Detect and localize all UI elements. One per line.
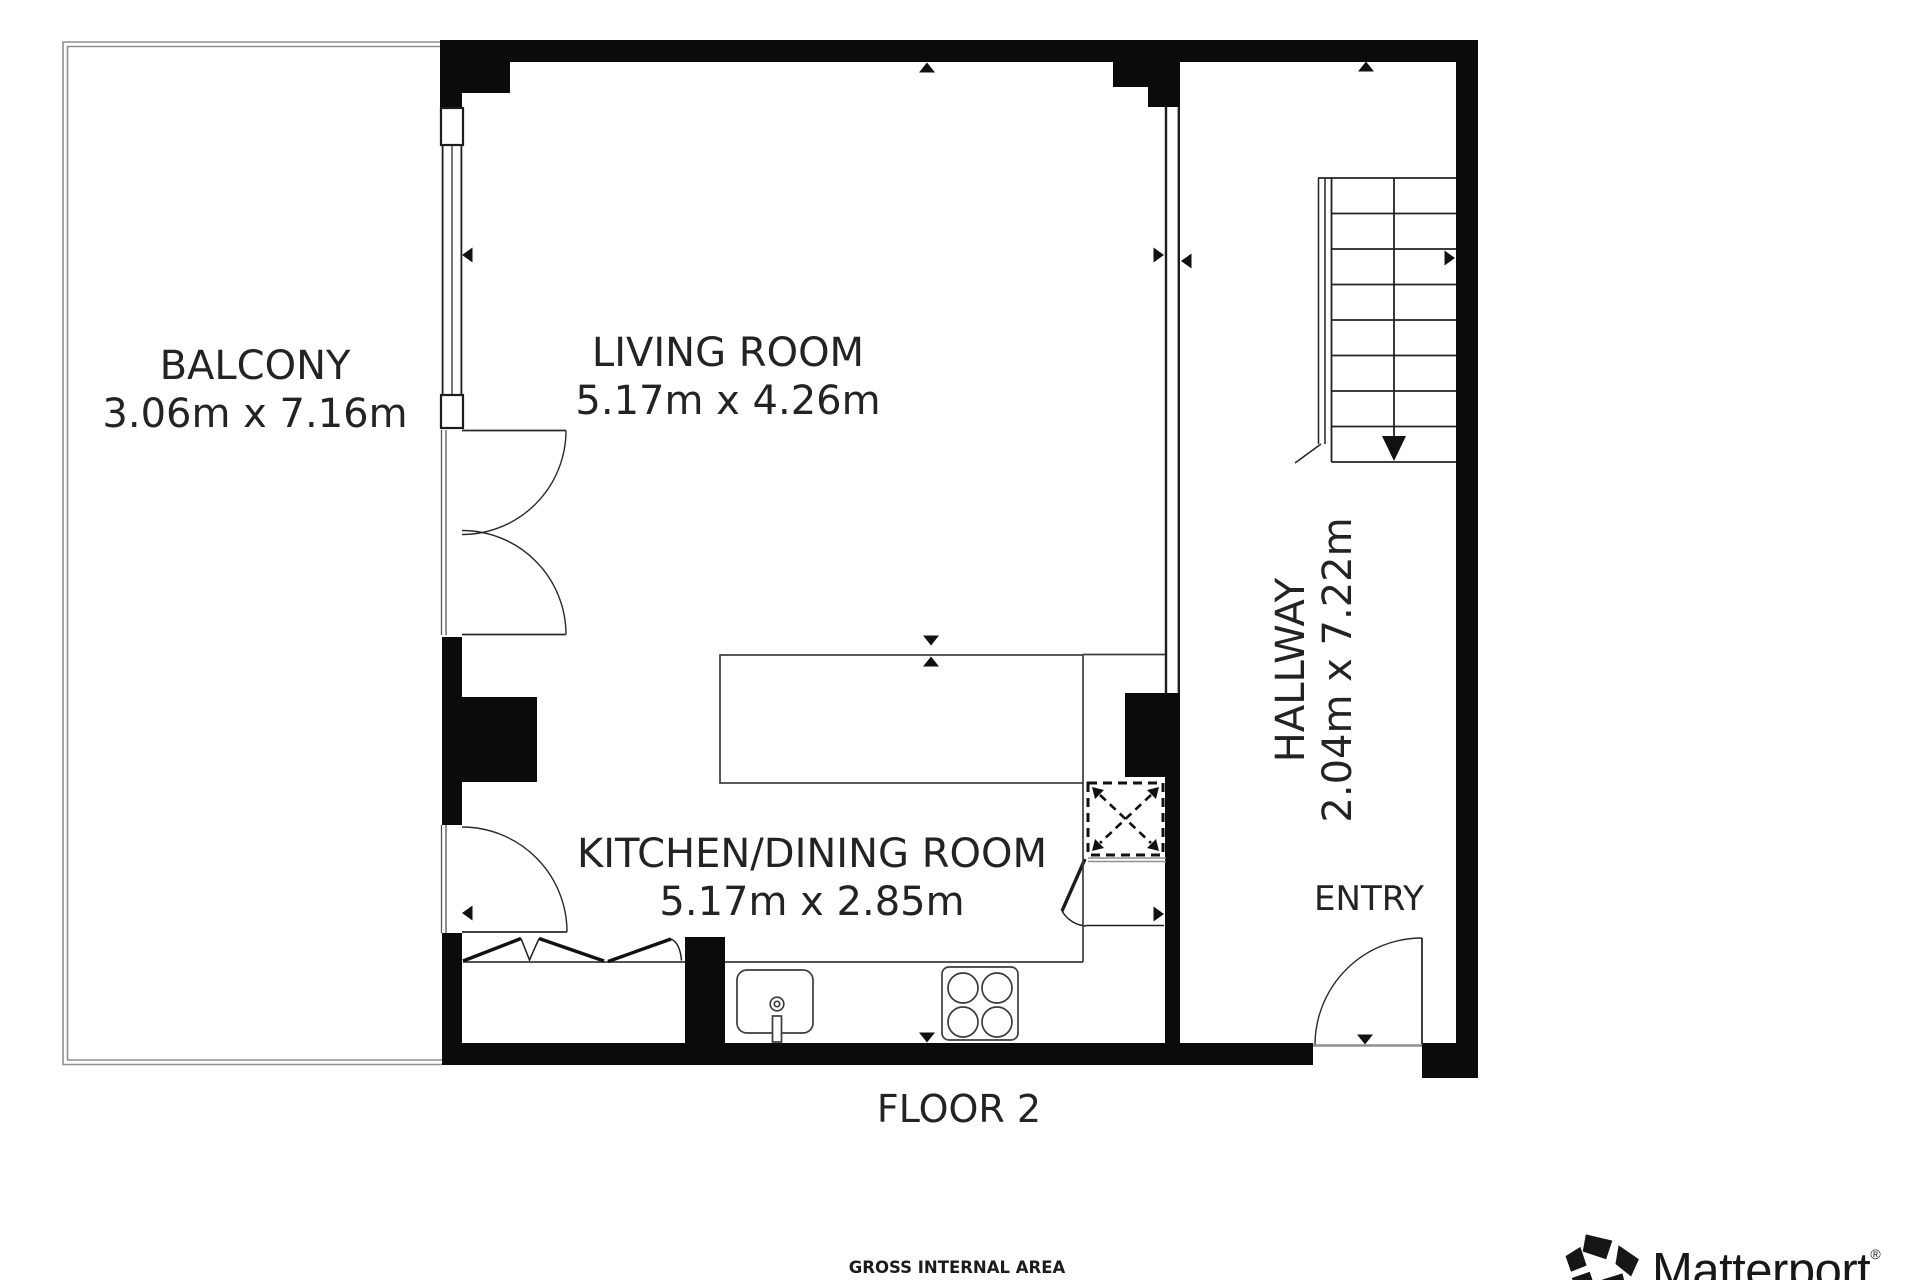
floor-title: FLOOR 2 <box>877 1087 1041 1131</box>
matterport-logo-icon <box>1564 1231 1642 1280</box>
room-dims: 5.17m x 2.85m <box>577 878 1047 926</box>
room-label-entry: ENTRY <box>1314 879 1424 919</box>
room-name: BALCONY <box>102 342 407 390</box>
french-doors <box>462 431 566 635</box>
stairs-down-arrow <box>1382 436 1406 461</box>
partition-living-hallway <box>1165 107 1180 693</box>
room-dims: 2.04m x 7.22m <box>1315 517 1362 822</box>
room-dims: 5.17m x 4.26m <box>575 377 880 425</box>
stairs <box>1295 178 1456 463</box>
wall-pillar <box>685 937 725 1044</box>
room-name: LIVING ROOM <box>575 329 880 377</box>
sink-icon <box>737 970 813 1042</box>
room-label-hallway: HALLWAY 2.04m x 7.22m <box>1268 517 1362 822</box>
gross-internal-area: GROSS INTERNAL AREA FLOOR 1 68.9 m² FLOO… <box>793 1223 1122 1280</box>
matterport-wordmark: Matterport® <box>1652 1243 1880 1280</box>
room-label-living-room: LIVING ROOM 5.17m x 4.26m <box>575 329 880 425</box>
stove-icon <box>942 967 1018 1040</box>
room-dims: 3.06m x 7.16m <box>102 390 407 438</box>
area-title: GROSS INTERNAL AREA <box>793 1259 1122 1277</box>
room-name: KITCHEN/DINING ROOM <box>577 830 1047 878</box>
kitchen-hallway-door <box>1062 859 1164 926</box>
window <box>441 108 463 428</box>
void-box <box>1088 783 1166 862</box>
bifold-doors <box>463 939 682 962</box>
entry-door <box>1315 938 1422 1045</box>
room-label-kitchen-dining: KITCHEN/DINING ROOM 5.17m x 2.85m <box>577 830 1047 926</box>
registered-mark: ® <box>1870 1246 1880 1262</box>
room-name: HALLWAY <box>1268 517 1315 822</box>
balcony-kitchen-door <box>462 827 567 932</box>
floorplan-page: BALCONY 3.06m x 7.16m LIVING ROOM 5.17m … <box>0 0 1920 1280</box>
room-label-balcony: BALCONY 3.06m x 7.16m <box>102 342 407 438</box>
balcony-outline <box>63 42 442 1065</box>
